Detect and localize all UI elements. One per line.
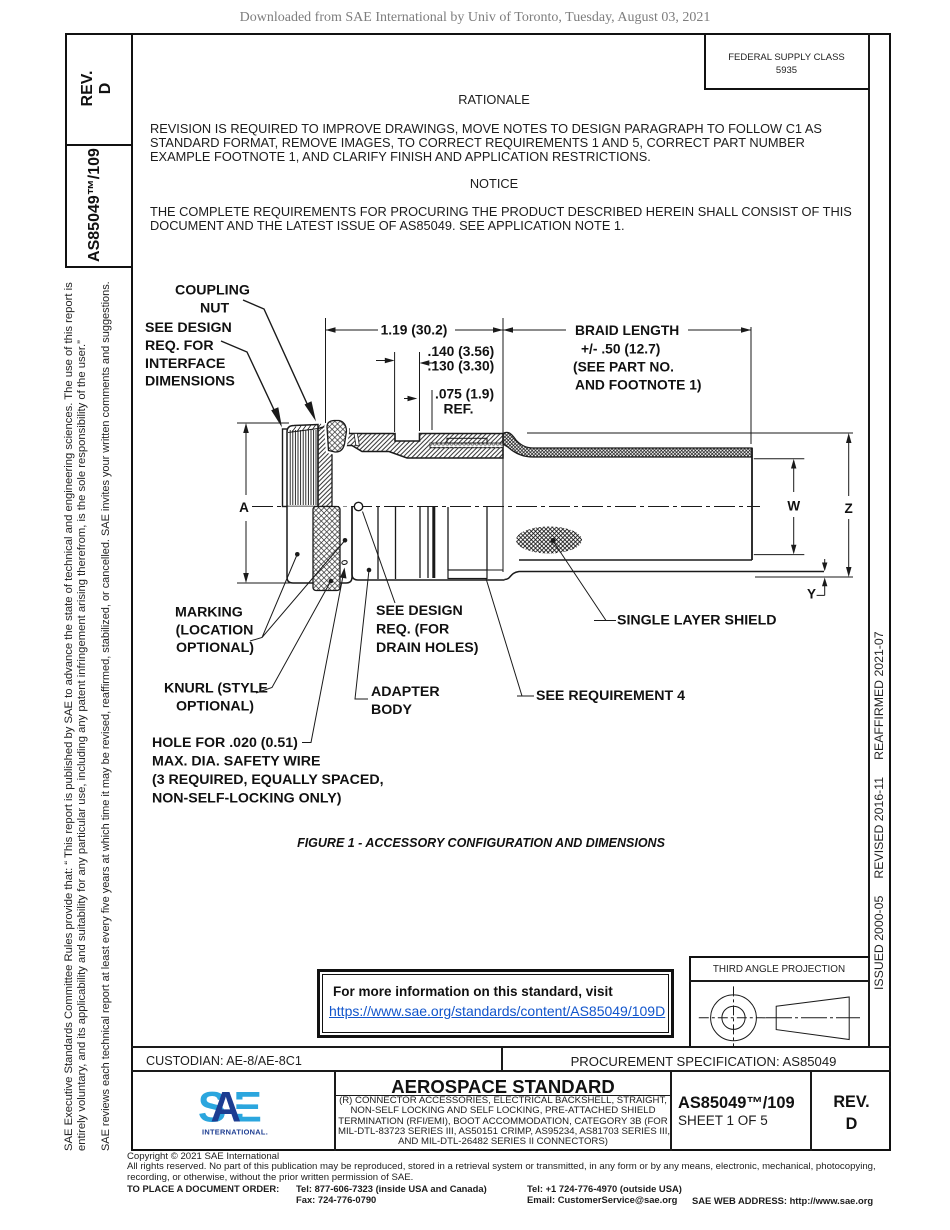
svg-text:MARKING: MARKING	[175, 605, 243, 621]
svg-text:W: W	[787, 499, 800, 514]
svg-text:(SEE PART NO.: (SEE PART NO.	[573, 360, 674, 375]
svg-text:(LOCATION: (LOCATION	[176, 622, 254, 638]
svg-text:BODY: BODY	[371, 702, 413, 718]
svg-text:+/- .50 (12.7): +/- .50 (12.7)	[581, 342, 660, 357]
svg-text:.140 (3.56): .140 (3.56)	[428, 344, 495, 359]
svg-text:SEE REQUIREMENT 4: SEE REQUIREMENT 4	[536, 688, 685, 704]
svg-text:FIGURE 1 - ACCESSORY CONFIGURA: FIGURE 1 - ACCESSORY CONFIGURATION AND D…	[297, 836, 666, 850]
svg-text:BRAID LENGTH: BRAID LENGTH	[575, 323, 679, 338]
svg-text:INTERNATIONAL.: INTERNATIONAL.	[202, 1128, 268, 1137]
svg-text:.075 (1.9): .075 (1.9)	[435, 387, 494, 402]
svg-text:OPTIONAL): OPTIONAL)	[176, 640, 254, 656]
svg-text:REQ. (FOR: REQ. (FOR	[376, 622, 449, 638]
svg-text:REQ. FOR: REQ. FOR	[145, 338, 214, 354]
svg-text:OPTIONAL): OPTIONAL)	[176, 698, 254, 714]
svg-text:NON-SELF-LOCKING ONLY): NON-SELF-LOCKING ONLY)	[152, 791, 342, 807]
svg-text:AND FOOTNOTE 1): AND FOOTNOTE 1)	[575, 378, 701, 393]
svg-text:Z: Z	[844, 501, 852, 516]
svg-text:SEE DESIGN: SEE DESIGN	[145, 320, 232, 336]
svg-text:A: A	[239, 500, 249, 515]
svg-text:SINGLE LAYER SHIELD: SINGLE LAYER SHIELD	[617, 613, 777, 629]
svg-text:1.19 (30.2): 1.19 (30.2)	[381, 323, 448, 338]
svg-text:.130 (3.30): .130 (3.30)	[428, 359, 495, 374]
svg-text:ADAPTER: ADAPTER	[371, 684, 440, 700]
svg-text:DRAIN HOLES): DRAIN HOLES)	[376, 640, 479, 656]
svg-text:KNURL (STYLE: KNURL (STYLE	[164, 681, 268, 697]
svg-text:DIMENSIONS: DIMENSIONS	[145, 374, 235, 390]
svg-text:REF.: REF.	[444, 402, 474, 417]
svg-text:A: A	[211, 1085, 241, 1132]
svg-text:SEE DESIGN: SEE DESIGN	[376, 603, 463, 619]
svg-text:COUPLING: COUPLING	[175, 283, 250, 299]
svg-text:(3 REQUIRED, EQUALLY SPACED,: (3 REQUIRED, EQUALLY SPACED,	[152, 772, 384, 788]
svg-text:HOLE FOR .020 (0.51): HOLE FOR .020 (0.51)	[152, 735, 298, 751]
svg-text:NUT: NUT	[200, 301, 229, 317]
svg-text:INTERFACE: INTERFACE	[145, 356, 225, 372]
svg-text:MAX. DIA. SAFETY WIRE: MAX. DIA. SAFETY WIRE	[152, 754, 320, 770]
svg-text:Y: Y	[807, 587, 816, 602]
